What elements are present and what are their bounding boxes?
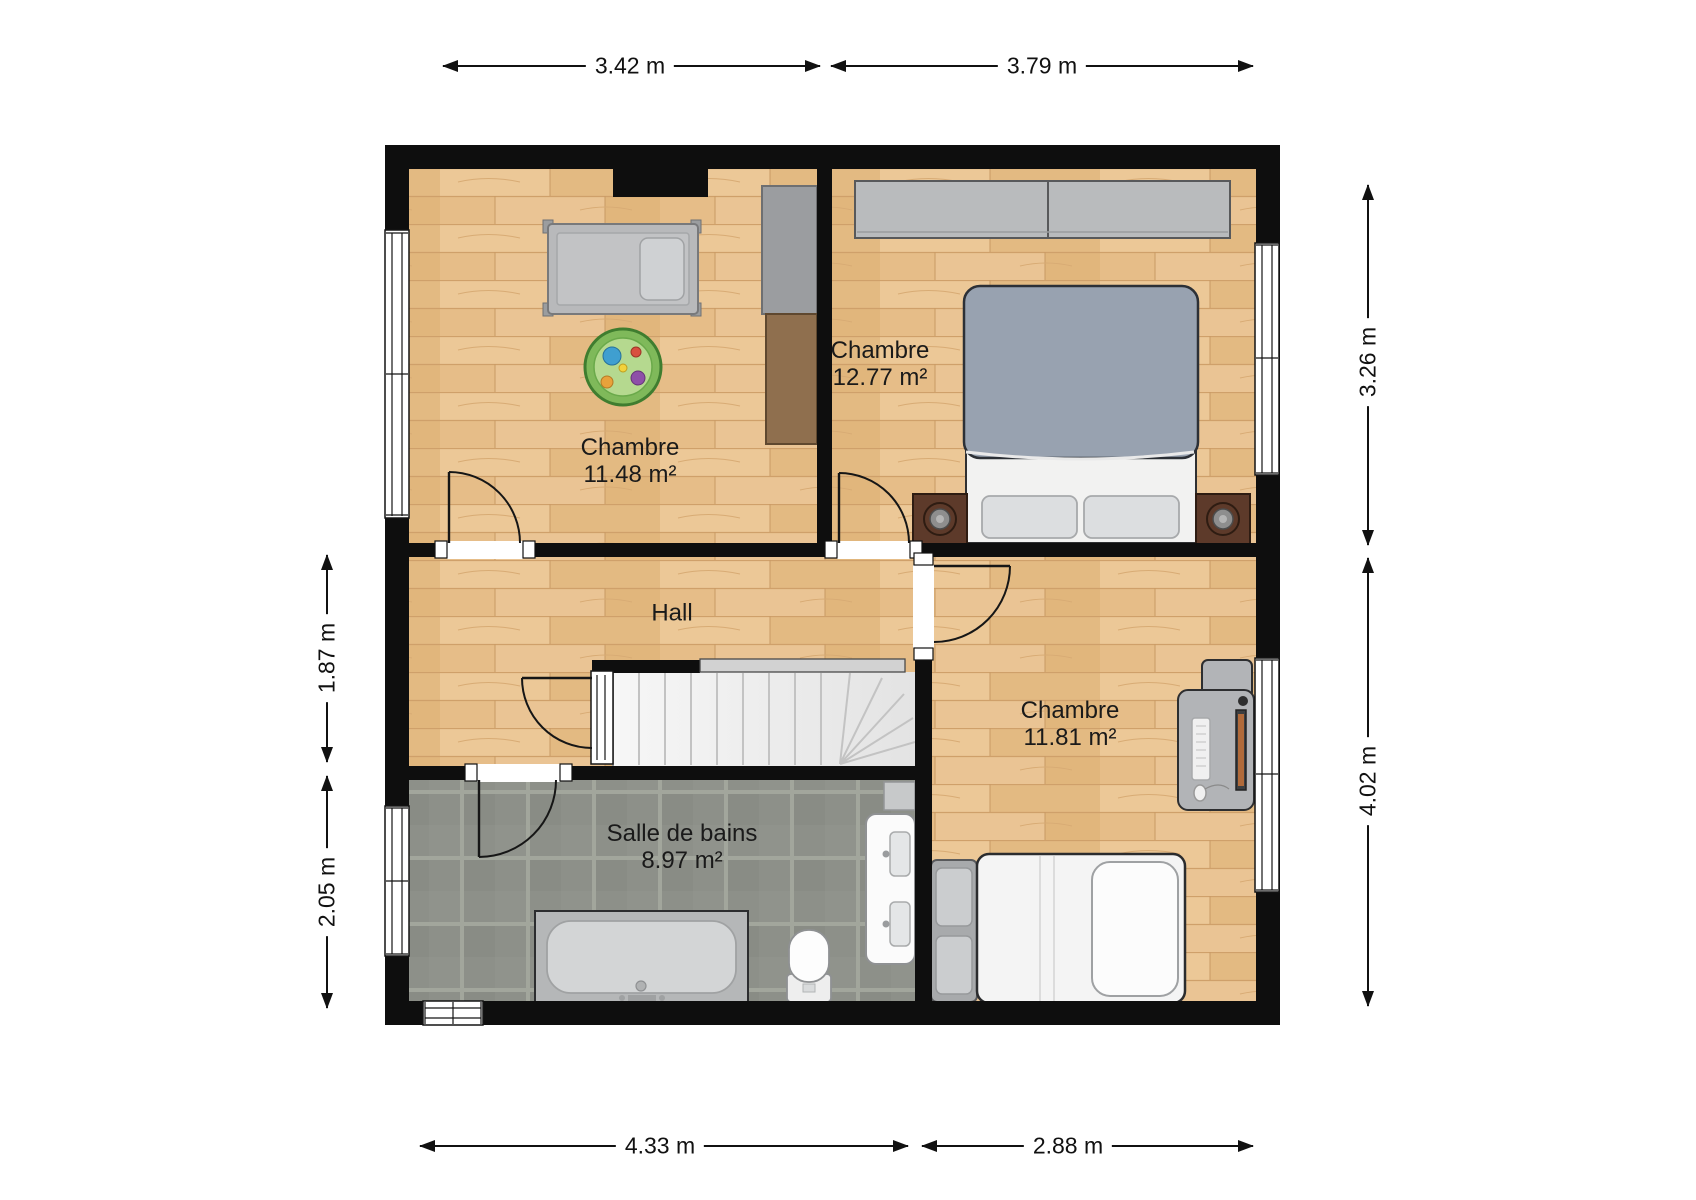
window-icon xyxy=(423,1001,483,1025)
bench-icon xyxy=(931,860,977,1002)
nightstand-left-icon xyxy=(913,494,967,544)
window-icon xyxy=(385,806,409,956)
exterior-wall-bottom xyxy=(385,1001,1280,1025)
play-rug-icon xyxy=(585,329,661,405)
bathtub-icon xyxy=(535,911,748,1003)
interior-wall-b xyxy=(817,169,832,543)
nightstand-right-icon xyxy=(1196,494,1250,544)
crib-icon xyxy=(543,220,701,316)
wall-nib xyxy=(613,169,708,197)
stair-door-frame xyxy=(591,671,613,764)
exterior-wall-top xyxy=(385,145,1280,169)
stairs-icon xyxy=(592,659,916,766)
stair-railing xyxy=(700,659,905,672)
single-bed-icon xyxy=(977,854,1185,1003)
toilet-icon xyxy=(787,930,831,1002)
window-icon xyxy=(1255,243,1279,475)
floor-plan: Chambre 11.48 m² Chambre 12.77 m² Hall C… xyxy=(0,0,1696,1200)
window-icon xyxy=(385,230,409,518)
wardrobe-icon xyxy=(855,181,1230,238)
tall-cabinet-icon xyxy=(762,186,817,444)
double-bed-icon xyxy=(964,286,1198,543)
floorplan-svg xyxy=(0,0,1696,1200)
window-icon xyxy=(1255,658,1279,892)
